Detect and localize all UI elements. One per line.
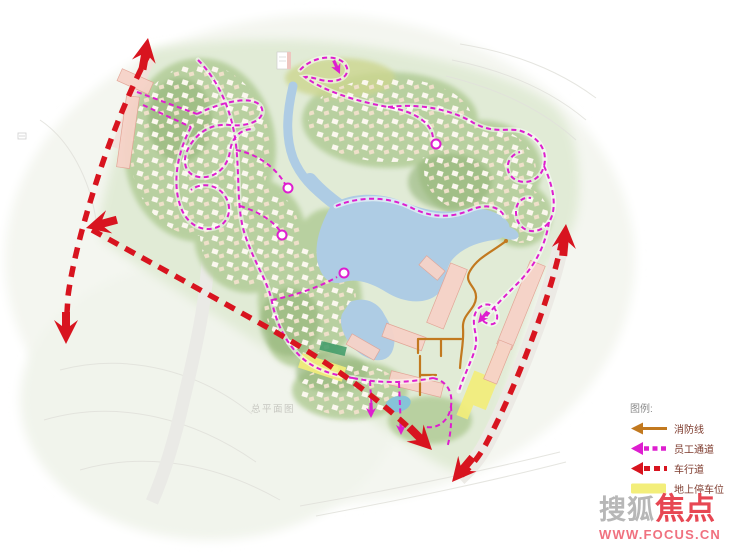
fire-line-icon bbox=[630, 422, 668, 435]
staff-passage-icon bbox=[630, 442, 668, 455]
watermark-url: WWW.FOCUS.CN bbox=[599, 528, 750, 541]
page: 总平面图 图例: 消防线 员工通道 车行道 地上停车位 搜狐焦点 WWW.FOC… bbox=[0, 0, 750, 560]
vehicle-road-icon bbox=[630, 462, 668, 475]
legend-label-staff-passage: 员工通道 bbox=[674, 441, 714, 456]
legend-label-vehicle-road: 车行道 bbox=[674, 461, 704, 476]
watermark-brand-accent: 焦点 bbox=[655, 493, 715, 526]
legend-title: 图例: bbox=[630, 400, 745, 415]
clubhouse-icon bbox=[277, 52, 291, 69]
map-marginal-mark bbox=[18, 133, 26, 139]
watermark-brand: 搜狐 bbox=[599, 495, 655, 525]
plan-caption: 总平面图 bbox=[251, 401, 295, 415]
legend-item-staff-passage: 员工通道 bbox=[630, 442, 745, 455]
watermark: 搜狐焦点 WWW.FOCUS.CN bbox=[599, 495, 750, 541]
legend-item-fire-line: 消防线 bbox=[630, 422, 745, 435]
legend-item-vehicle-road: 车行道 bbox=[630, 462, 745, 475]
legend-label-fire-line: 消防线 bbox=[674, 421, 704, 436]
legend: 图例: 消防线 员工通道 车行道 地上停车位 bbox=[630, 400, 745, 502]
